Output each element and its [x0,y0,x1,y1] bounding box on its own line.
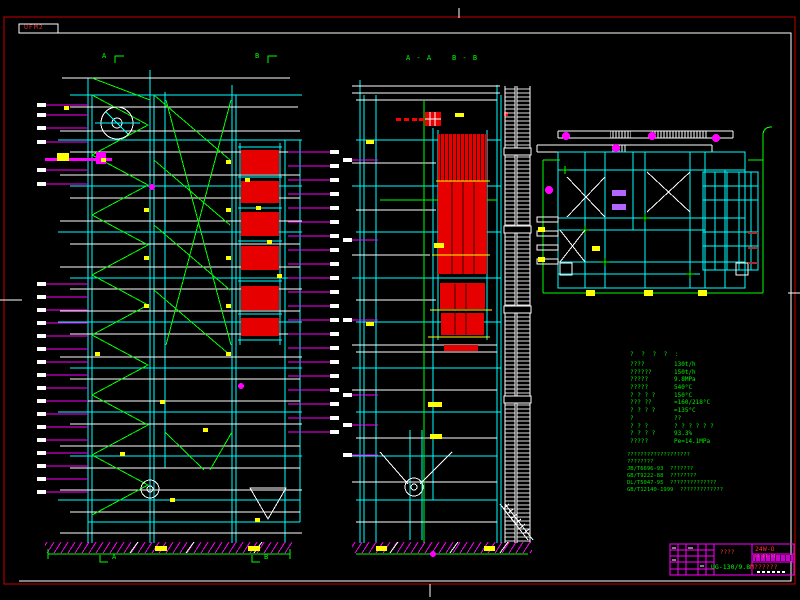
parameter-row: ? ? ? ?93.3% [630,430,681,438]
title-block-stamp: ???? [720,550,734,556]
section-label-b-top: B [255,53,259,60]
note-line: ???????? [627,459,723,466]
hopper-slopes [380,452,452,484]
sheet-border [0,8,800,597]
parameter-row: ? ? ?? ? ? ? ? ? [630,423,681,431]
boiler-model-code: UG-130/9.8 [711,563,750,571]
boiler-model-suffix: M?????? [750,563,777,571]
note-line: GB/T12140-1999 ????????????? [627,487,723,494]
note-line: ??????????????????? [627,452,723,459]
ground-hatch-left [45,542,292,562]
parameter-row: ?????540°C [630,384,681,392]
boiler-parameters: ? ? ? ? : ????130t/h ??????150t/h ?????9… [630,351,681,446]
parameter-row: ? ? ? ?=135°C [630,407,681,415]
drawing-number: 24W-O [755,546,775,553]
ground-hatch-middle [352,542,532,557]
boiler-model: UG-130/9.8M?????? [711,564,778,571]
leader-lines-left [46,105,88,492]
plan-view [537,127,772,296]
note-line: JB/T6696-93 ??????? [627,466,723,473]
side-section-view [343,80,533,557]
section-mark-a [115,56,124,63]
parameter-row: ??? ??≈160/218°C [630,399,681,407]
parameter-row: ??? [630,415,681,423]
note-line: GB/T9222-88 ???????? [627,473,723,480]
section-label-a-bottom: A [112,554,116,561]
parameters-header: ? ? ? ? : [630,351,681,361]
section-label-b-bottom: B [264,554,268,561]
parameter-row: ? ? ? ?150°C [630,392,681,400]
parameter-row: ????130t/h [630,361,681,369]
drawing-linework [0,0,800,600]
standards-notes: ??????????????????? ???????? JB/T6696-93… [627,452,723,495]
note-line: DL/T5047-95 ?????????????? [627,480,723,487]
front-elevation-view [37,56,339,562]
corner-stamp: UFM2 [24,24,44,31]
parameter-row: ??????150t/h [630,369,681,377]
ash-hopper [250,488,286,519]
leader-lines-right [288,152,332,432]
section-title-aa: A - A [406,55,432,62]
parameter-row: ?????Pe=14.1MPa [630,438,681,446]
section-label-a-top: A [102,53,106,60]
cad-drawing-sheet: UFM2 A B A - A B - B A B ? ? ? ? : ????1… [0,0,800,600]
section-title-bb: B - B [452,55,478,62]
parameter-row: ?????9.8MPa [630,376,681,384]
center-tick-marks [0,8,800,597]
section-mark-b [268,56,277,63]
rear-ladder-structure [504,86,531,543]
sheet-info: ?? ?? ?? [754,556,776,561]
